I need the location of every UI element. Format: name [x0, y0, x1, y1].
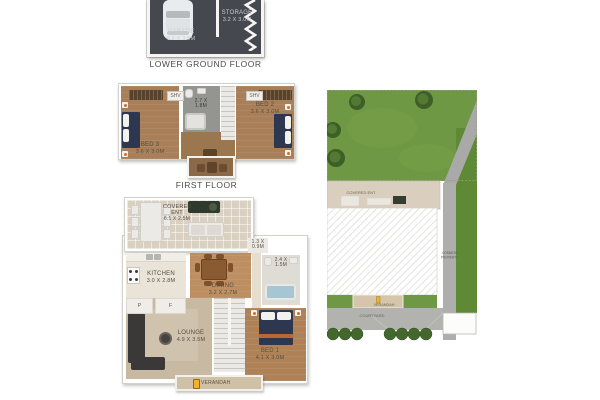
bbq-plant: [209, 203, 217, 211]
garage-room: [150, 0, 216, 51]
storage-open-edge-zigzag: [243, 0, 257, 51]
site-bbq: [393, 196, 406, 204]
lawn-patch: [399, 144, 455, 172]
ff-bathroom: 2.7 X 1.8M: [183, 86, 220, 132]
sofa-icon: [128, 313, 145, 363]
dining-chair-icon: [228, 263, 233, 272]
balcony-table-icon: [207, 162, 217, 173]
storage-label: STORAGE 3.2 X 3.0M: [216, 10, 258, 24]
shv-closet-left: SHV: [167, 91, 184, 101]
parking-pad: [443, 313, 476, 334]
bed-runner: [259, 334, 293, 338]
house-footprint-hatched: [327, 208, 437, 295]
pillow: [277, 312, 291, 320]
dining-label: DINING 3.2 X 2.7M: [201, 283, 245, 297]
basin-icon: [197, 88, 206, 94]
wardrobe-icon: [258, 90, 292, 100]
site-plan: COVERED ENT VERANDAH COURTYARD COMMON PR…: [327, 88, 477, 342]
lower-ground-floor-title: LOWER GROUND FLOOR: [147, 59, 264, 69]
bed2-room: BED 2 3.6 X 3.0M: [236, 86, 294, 159]
ff-balcony: [187, 156, 235, 178]
toilet-icon: [185, 89, 193, 98]
lower-ground-floor-plan: GARAGE 6.2 X 3.5M STORAGE 3.2 X 3.0M: [147, 0, 264, 57]
tree-icon: [349, 94, 365, 110]
lounge-label: LOUNGE 4.9 X 3.5M: [170, 330, 212, 344]
ff-staircase: [221, 86, 235, 140]
pillow: [285, 131, 291, 144]
fridge-label: F: [169, 303, 172, 309]
room-name: KITCHEN: [138, 271, 184, 278]
bed1-label: BED 1 4.1 X 3.0M: [241, 348, 299, 362]
first-floor-title: FIRST FLOOR: [118, 180, 295, 190]
room-dims: 3.2 X 3.0M: [216, 17, 258, 24]
bathtub-icon: [185, 113, 206, 130]
room-name: DINING: [201, 283, 245, 290]
bed3-label: BED 3 3.6 X 3.0M: [121, 142, 179, 156]
sink-icon: [146, 254, 153, 260]
burner: [129, 270, 132, 273]
first-floor-plan: BED 3 3.6 X 3.0M BED 2 3.6 X 3.0M: [118, 83, 295, 160]
outdoor-bench-icon: [188, 222, 224, 237]
bed2-bed-icon: [274, 114, 292, 148]
bathtub-icon: [265, 284, 296, 300]
gf-verandah: VERANDAH: [175, 375, 263, 391]
tree-icon: [415, 91, 433, 109]
pillow: [123, 129, 129, 142]
garage-label: GARAGE 6.2 X 3.5M: [150, 29, 212, 43]
burner: [129, 278, 132, 281]
fridge-closet: F: [155, 298, 186, 314]
dining-table-icon: [201, 259, 227, 280]
tree-icon: [327, 149, 345, 167]
site-outdoor-bench: [367, 198, 391, 205]
common-property-label-line2: PROPERTY: [441, 256, 459, 260]
room-name: LOUNGE: [170, 330, 212, 337]
bed1-room: [245, 308, 306, 381]
bedside-lamp-icon: [122, 102, 128, 108]
floorplan-canvas: GARAGE 6.2 X 3.5M STORAGE 3.2 X 3.0M LOW…: [0, 0, 600, 400]
car-windshield: [166, 11, 190, 18]
wc-room: 1.3 X 0.9M: [248, 238, 268, 253]
verandah-label: VERANDAH: [201, 380, 235, 387]
pantry-label: P: [138, 303, 142, 309]
site-verandah-label: VERANDAH: [373, 303, 394, 307]
bedside-lamp-icon: [285, 150, 291, 156]
outdoor-chair-icon: [131, 229, 139, 239]
covered-ent-label: COVERED ENT 6.1 X 2.5M: [156, 204, 198, 223]
lantern-icon: [193, 379, 200, 389]
room-dims: 6.1 X 2.5M: [156, 216, 198, 223]
pillow: [123, 114, 129, 127]
pillow: [285, 116, 291, 129]
room-name: BED 1: [241, 348, 299, 355]
room-dims: 4.9 X 3.5M: [170, 337, 212, 344]
room-dims: 4.1 X 3.0M: [241, 355, 299, 362]
room-dims: 3.2 X 2.7M: [201, 290, 245, 297]
ground-floor-plan: COVERED ENT 6.1 X 2.5M KITCHEN 3.0 X 2.8…: [122, 197, 308, 393]
room-dims: 6.2 X 3.5M: [150, 36, 212, 43]
common-property-label-line1: COMMON: [442, 251, 458, 255]
gf-hallway: [252, 253, 261, 310]
room-name: STORAGE: [216, 10, 258, 17]
bedside-lamp-icon: [285, 104, 291, 110]
room-name: GARAGE: [150, 29, 212, 36]
room-name: BED 3: [121, 142, 179, 149]
outdoor-chair-icon: [131, 205, 139, 215]
room-dims: 3.6 X 3.0M: [121, 149, 179, 156]
bench-cushion: [207, 225, 221, 235]
ff-bathroom-label: 2.7 X 1.8M: [191, 99, 211, 109]
bench-cushion: [191, 225, 205, 235]
wc-label: 1.3 X 0.9M: [250, 240, 266, 250]
bed1-bed-icon: [259, 310, 293, 345]
gf-bathroom-label: 2.4 X 1.5M: [271, 258, 291, 268]
balcony-chair-icon: [197, 164, 205, 172]
stair-divider: [228, 298, 231, 346]
pillow: [261, 312, 275, 320]
courtyard-label: COURTYARD: [360, 313, 385, 318]
shv-label: SHV: [170, 93, 180, 99]
bedside-lamp-icon: [251, 310, 257, 316]
pantry-closet: P: [126, 298, 153, 314]
shv-closet-right: SHV: [246, 91, 263, 101]
sofa-icon: [131, 357, 165, 370]
outdoor-chair-icon: [163, 229, 171, 239]
dining-chair-icon: [195, 263, 200, 272]
site-covered-ent-label: COVERED ENT: [347, 190, 376, 195]
kitchen-label: KITCHEN 3.0 X 2.8M: [138, 271, 184, 285]
lawn-patch: [347, 108, 417, 148]
room-name: COVERED ENT: [163, 204, 191, 216]
balcony-chair-icon: [219, 164, 227, 172]
shv-label: SHV: [249, 93, 259, 99]
sink-icon: [154, 254, 161, 260]
site-outdoor-table: [341, 196, 359, 206]
outdoor-chair-icon: [131, 217, 139, 227]
room-dims: 3.0 X 2.8M: [138, 278, 184, 285]
bedside-lamp-icon: [295, 310, 301, 316]
wardrobe-icon: [129, 90, 163, 100]
